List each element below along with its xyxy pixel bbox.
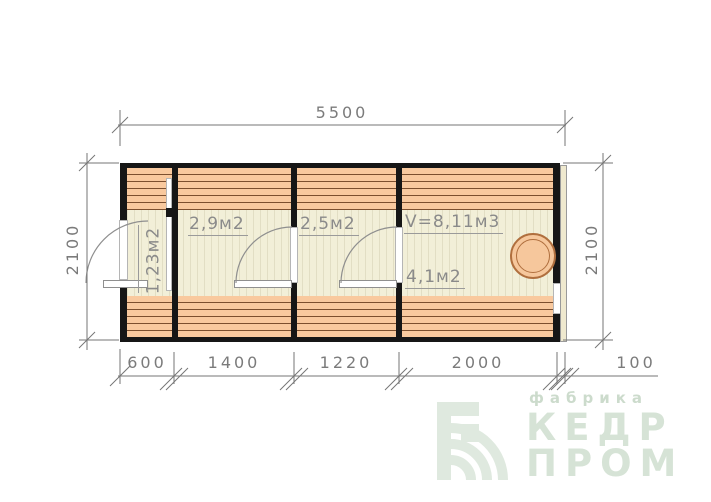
dim-bottom-2000: 2000: [448, 353, 508, 372]
end-board: [560, 165, 567, 342]
dim-bottom-1220: 1220: [316, 353, 376, 372]
partition-1-2-door-closed: [166, 178, 172, 291]
dim-bottom-600: 600: [117, 353, 177, 372]
room2-area-label: 2,9м2: [188, 214, 248, 236]
room3-area-label: 2,5м2: [299, 214, 359, 236]
dim-left: 2100: [63, 210, 79, 288]
dim-right: 2100: [582, 210, 598, 288]
room2-door-leaf: [234, 280, 292, 288]
room3-door-leaf: [339, 280, 397, 288]
dim-top: 5500: [307, 103, 377, 122]
logo-name-bottom: ПРОМ: [526, 442, 684, 485]
room4-area-label: 4,1м2: [405, 267, 465, 289]
bottom-plank-band: [127, 296, 553, 337]
partition-1-2: [172, 168, 178, 337]
room4-volume-label: V=8,11м3: [404, 212, 503, 234]
room1-area-label: 1,23м2: [144, 219, 163, 301]
dim-bottom-100: 100: [606, 353, 666, 372]
partition-2-3-door-opening: [290, 227, 298, 283]
top-plank-band: [127, 168, 553, 210]
entrance-door-leaf: [103, 280, 148, 288]
partition-1-2-wall-stub: [166, 208, 172, 217]
entrance-door-opening: [119, 220, 128, 280]
dim-bottom-1400: 1400: [204, 353, 264, 372]
stove-inner-ring: [516, 239, 550, 273]
floor-plan-drawing: фабрика КЕДР ПРОМ: [0, 0, 711, 502]
logo-tagline: фабрика: [529, 389, 648, 407]
room1-label-underline: [138, 225, 139, 293]
partition-3-4-door-opening: [395, 227, 403, 283]
